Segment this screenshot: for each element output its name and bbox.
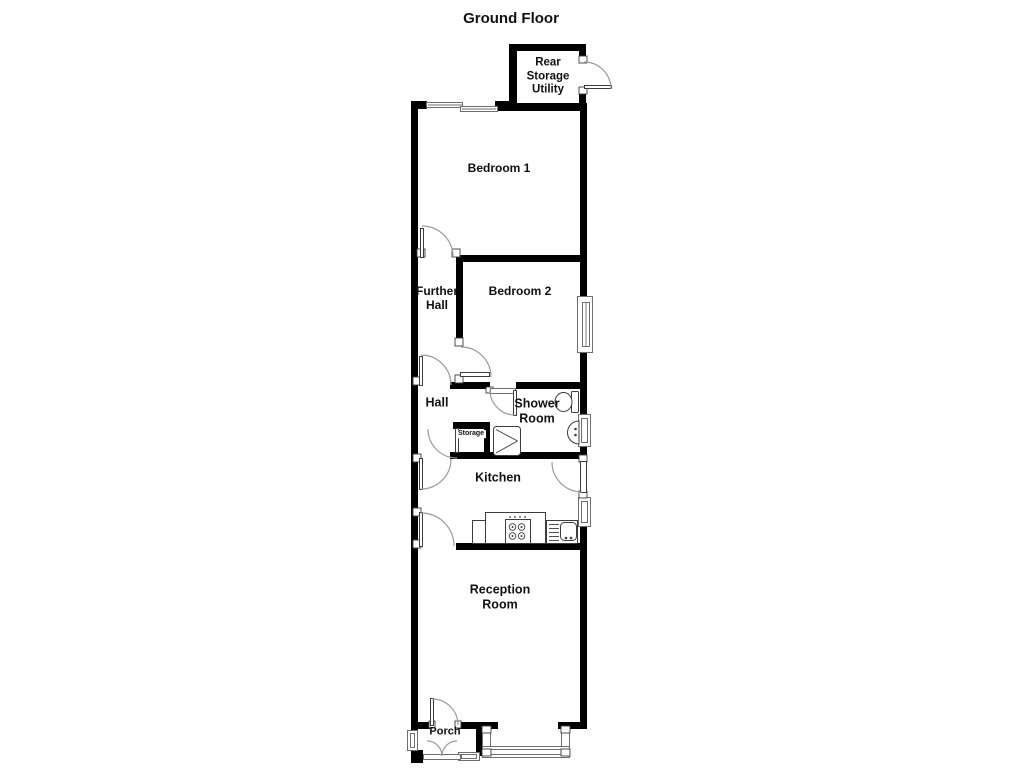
room-label-rear-storage-utility: Rear Storage Utility xyxy=(527,57,570,98)
bedroom2-door xyxy=(455,338,491,383)
kitchen-side-door xyxy=(552,455,587,498)
room-label-storage: Storage xyxy=(456,430,486,438)
reception-kitchen-door xyxy=(413,508,454,548)
kitchen-window xyxy=(579,498,591,527)
bedroom1-top-window xyxy=(427,103,498,112)
bedroom2-window xyxy=(578,297,593,353)
kitchen-hall-door xyxy=(413,454,451,490)
shower-room-door xyxy=(486,387,517,416)
shower-room-window xyxy=(579,415,591,447)
room-label-porch: Porch xyxy=(429,726,460,739)
page-title: Ground Floor xyxy=(463,10,559,28)
room-label-further-hall: Further Hall xyxy=(416,284,458,312)
utility-external-door xyxy=(579,56,612,94)
porch-reception-door xyxy=(429,699,461,729)
hob-icon xyxy=(506,516,531,543)
shower-tray-icon xyxy=(494,427,521,456)
room-label-hall: Hall xyxy=(426,396,449,411)
room-label-kitchen: Kitchen xyxy=(475,471,521,486)
porch-entrance-double-door xyxy=(424,741,461,760)
floor-plan-drawing xyxy=(0,0,1024,768)
bay-window xyxy=(482,726,570,758)
room-label-shower-room: Shower Room xyxy=(514,396,559,426)
basin-icon xyxy=(568,421,580,444)
porch-side-window xyxy=(408,731,418,751)
kitchen-sink-icon xyxy=(547,521,578,544)
porch-front-sidelight xyxy=(459,753,480,761)
room-label-bedroom-1: Bedroom 1 xyxy=(468,161,531,175)
floor-plan-image: Ground Floor Rear Storage Utility Bedroo… xyxy=(0,0,1024,768)
further-hall-door xyxy=(413,355,451,386)
bedroom1-door xyxy=(417,226,460,258)
room-label-bedroom-2: Bedroom 2 xyxy=(489,284,552,298)
kitchen-fixtures xyxy=(473,513,578,544)
room-label-reception-room: Reception Room xyxy=(470,582,530,612)
